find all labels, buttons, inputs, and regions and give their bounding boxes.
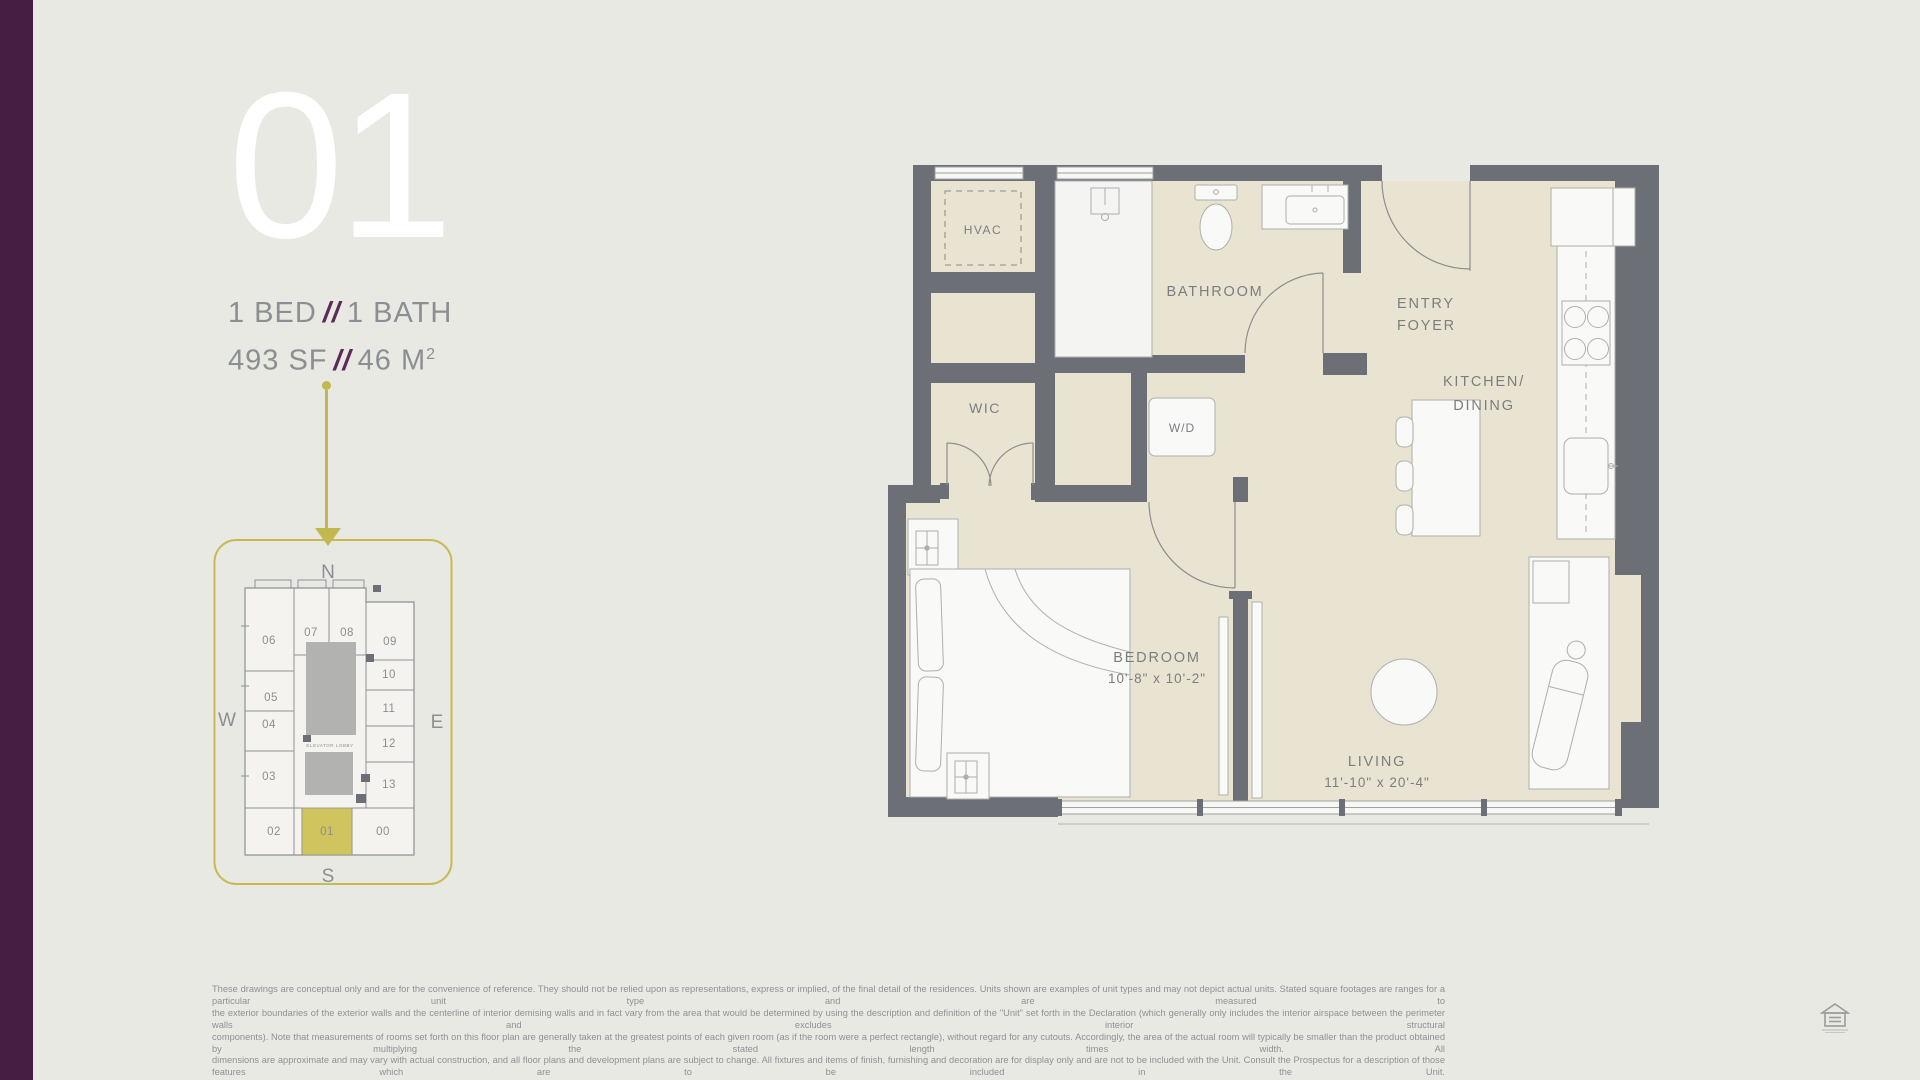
spec-sf: 493 SF [228,345,328,377]
keyplan-unit-label: 09 [383,636,397,648]
sofa-chaise [1529,557,1609,789]
stove [1562,301,1610,365]
disclaimer-line: the exterior boundaries of the exterior … [212,1008,1445,1032]
dining-chair [1396,417,1413,447]
compass-east: E [431,712,444,733]
unit-number: 01 [228,62,447,270]
disclaimer-line: components). Note that measurements of r… [212,1032,1445,1056]
dining-table [1412,400,1480,536]
equal-housing-logo [1820,1002,1850,1039]
label-kitchen-line1: KITCHEN/ [1443,374,1525,390]
unit-specs: 1 BED//1 BATH 493 SF//46 M2 [228,292,452,382]
nightstand [908,519,958,575]
spec-bed: 1 BED [228,297,317,329]
label-living: LIVING [1348,754,1406,770]
disclaimer-line: These drawings are conceptual only and a… [212,984,1445,1008]
keyplan-unit-label: 03 [262,771,276,783]
compass-south: S [322,866,335,887]
keyplan-unit-label: 04 [262,719,276,731]
label-wic: WIC [969,400,1001,416]
keyplan-unit-label: 12 [382,738,396,750]
label-entry-line1: ENTRY [1397,296,1455,312]
spec-separator: // [317,297,347,329]
label-bedroom-dims: 10'-8" x 10'-2" [1108,671,1206,686]
spec-bath: 1 BATH [347,297,452,329]
window-band [1055,799,1649,824]
fridge [1551,188,1635,246]
spec-line-area: 493 SF//46 M2 [228,334,452,382]
spec-separator: // [328,345,358,377]
keyplan-unit-label: 05 [264,692,278,704]
spec-line-bed-bath: 1 BED//1 BATH [228,292,452,334]
kitchen-sink [1564,438,1608,494]
keyplan: N W E S [211,526,455,893]
dining-set [1396,400,1480,536]
shower [1055,181,1152,357]
keyplan-unit-label: 00 [376,826,390,838]
bed [910,569,1130,797]
keyplan-elevator-label: ELEVATOR LOBBY [306,743,353,748]
label-bedroom: BEDROOM [1113,650,1201,666]
vanity-sink [1262,185,1348,229]
label-bathroom: BATHROOM [1166,284,1263,300]
keyplan-elevator-core-upper [306,642,356,735]
label-entry-line2: FOYER [1397,318,1456,334]
floorplan: HVAC WIC BATHROOM ENTRY FOYER KITCHEN/ D… [885,155,1665,850]
keyplan-unit-label: 13 [382,779,396,791]
keyplan-unit-label: 02 [267,826,281,838]
round-table [1371,659,1437,725]
label-hvac: HVAC [964,223,1002,237]
keyplan-unit-label: 11 [383,703,396,715]
compass-west: W [218,710,236,731]
label-kitchen-line2: DINING [1453,398,1515,414]
label-living-dims: 11'-10" x 20'-4" [1324,775,1430,790]
dining-chair [1396,505,1413,535]
keyplan-pointer-arrow-icon [315,528,341,546]
sidebar-accent-bar [0,0,33,1080]
disclaimer-text: These drawings are conceptual only and a… [212,984,1445,1079]
spec-sqm-sup: 2 [426,346,436,363]
dresser [947,753,989,799]
spec-sqm: 46 M [358,345,426,377]
keyplan-unit-label: 08 [340,627,354,639]
dining-chair [1396,461,1413,491]
leader-line [325,390,328,528]
disclaimer-line: dimensions are approximate and may vary … [212,1055,1445,1079]
keyplan-unit-label: 01 [320,826,334,838]
keyplan-unit-label: 10 [382,669,396,681]
leader-dot [322,381,331,390]
label-wd: W/D [1169,421,1195,435]
keyplan-building: ELEVATOR LOBBY 06 07 08 09 05 10 11 04 1… [241,580,414,855]
keyplan-elevator-core-lower [305,752,353,795]
keyplan-unit-label: 06 [262,635,276,647]
keyplan-unit-label: 07 [304,627,318,639]
